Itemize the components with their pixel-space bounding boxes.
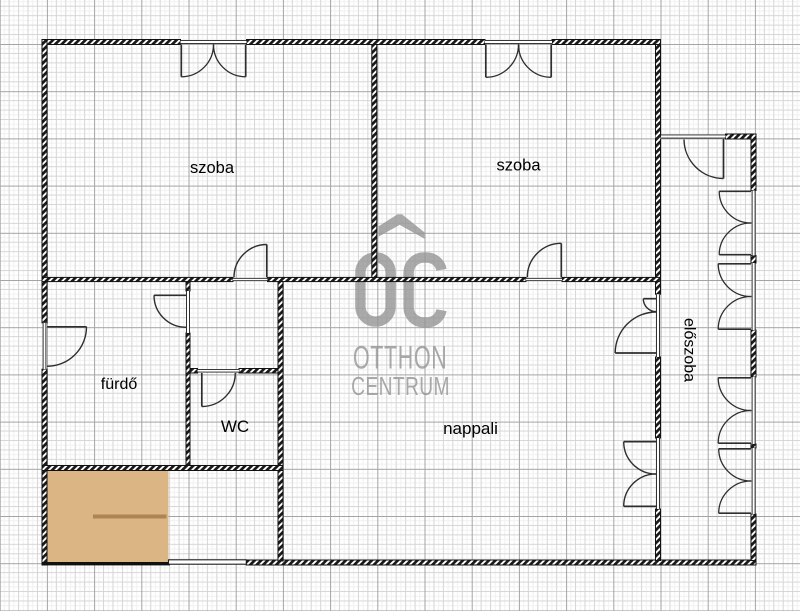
svg-text:szoba: szoba [496, 157, 541, 175]
svg-text:OTTHON: OTTHON [353, 339, 447, 375]
svg-text:CENTRUM: CENTRUM [351, 371, 450, 401]
svg-text:fürdő: fürdő [101, 376, 138, 393]
svg-text:WC: WC [221, 417, 249, 436]
svg-text:szoba: szoba [190, 159, 235, 177]
svg-text:előszoba: előszoba [681, 318, 698, 382]
svg-text:nappali: nappali [443, 419, 498, 438]
